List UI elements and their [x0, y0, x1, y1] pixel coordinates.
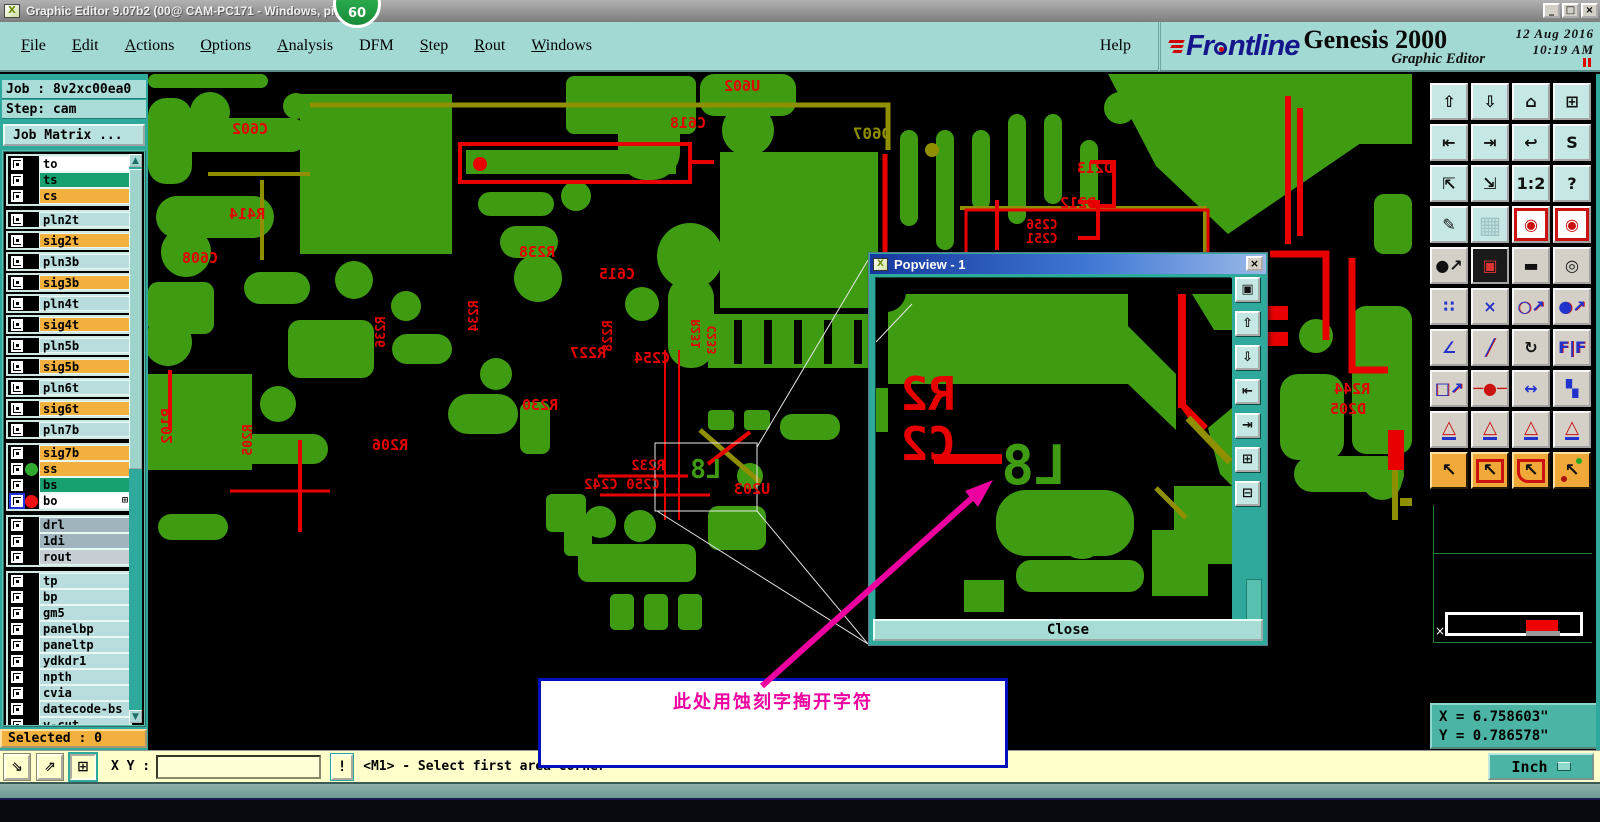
- layer-row-sig3b: sig3b: [6, 273, 132, 292]
- layer-checkbox-cvia[interactable]: [11, 687, 23, 699]
- scroll-up-icon[interactable]: ▲: [129, 154, 142, 167]
- layer-scrollbar[interactable]: ▲ ▼: [129, 154, 142, 723]
- layer-name-pln5b[interactable]: pln5b: [39, 338, 130, 353]
- layer-name-v-cut[interactable]: v-cut: [39, 717, 130, 727]
- layer-checkbox-bs[interactable]: [11, 479, 23, 491]
- maximize-button[interactable]: □: [1562, 3, 1579, 18]
- navigator-line: [1433, 505, 1434, 642]
- grid-select-button[interactable]: ⊞: [70, 754, 96, 780]
- home-view-button[interactable]: ⌂: [1512, 83, 1550, 120]
- product-subtitle: Graphic Editor: [1391, 51, 1485, 68]
- layer-name-pln6t[interactable]: pln6t: [39, 380, 130, 395]
- zoom-out-view-button[interactable]: ⇩: [1471, 83, 1509, 120]
- layer-name-sig4t[interactable]: sig4t: [39, 317, 130, 332]
- measure-ruler-button[interactable]: ▬: [1512, 247, 1550, 284]
- layer-row-rout: rout: [8, 549, 130, 565]
- popview-pan-left-button[interactable]: ⇤: [1235, 379, 1260, 404]
- layer-name-gm5[interactable]: gm5: [39, 605, 130, 621]
- navigator-marker: [1526, 620, 1558, 631]
- layer-row-bo: bo⊞: [8, 493, 130, 509]
- axis-select-button[interactable]: ⇗: [37, 754, 63, 780]
- layer-checkbox-pln7b[interactable]: [11, 424, 23, 436]
- app-icon: X: [4, 4, 20, 18]
- popview-title: Popview - 1: [894, 257, 966, 272]
- surface-fill-1-button[interactable]: △: [1430, 411, 1468, 448]
- status-buttons: ⇘⇗⊞: [4, 754, 103, 780]
- right-panel: ⇧⇩⌂⊞⇤⇥↩S⇱⇲1:2?✎▦◉◉●↗▣▬◎∷×○↗●↗∠╱↻F|F□↗─●─…: [1412, 74, 1596, 750]
- popview-window[interactable]: X Popview - 1 ×: [868, 252, 1268, 646]
- layer-row-bp: bp: [8, 589, 130, 605]
- popview-close-icon[interactable]: ×: [1246, 256, 1263, 271]
- layer-checkbox-sig6t[interactable]: [11, 403, 23, 415]
- previous-view-button[interactable]: ↩: [1512, 124, 1550, 161]
- serpentine-view-button[interactable]: S: [1553, 124, 1591, 161]
- layer-row-ss: ss: [8, 461, 130, 477]
- pcb-label: C2: [900, 417, 955, 471]
- move-origin-button[interactable]: ●↗: [1430, 247, 1468, 284]
- layer-colors-a-button[interactable]: ◉: [1512, 206, 1550, 243]
- window-title: Graphic Editor 9.07b2 (00@ CAM-PC171 - W…: [26, 4, 376, 18]
- select-net-button[interactable]: ↖: [1553, 452, 1591, 489]
- split-view-xy-button[interactable]: ⊞: [1553, 83, 1591, 120]
- surface-fill-4-button[interactable]: △: [1553, 411, 1591, 448]
- layer-list: totscspln2tsig2tpln3bsig3bpln4tsig4tpln5…: [2, 150, 146, 727]
- layer-row-panelbp: panelbp: [8, 621, 130, 637]
- scroll-thumb[interactable]: [129, 169, 142, 469]
- copy-pad-button[interactable]: □↗: [1430, 370, 1468, 407]
- layer-checkbox-pln4t[interactable]: [11, 298, 23, 310]
- layer-row-drl: drl: [8, 517, 130, 533]
- pcb-label: C233: [705, 326, 719, 355]
- pcb-label: R227: [570, 344, 606, 362]
- brand-panel: Frntline Genesis 2000 Graphic Editor 12 …: [1158, 22, 1600, 72]
- pause-icon: [1583, 58, 1591, 67]
- stretch-trace-button[interactable]: ─●─: [1471, 370, 1509, 407]
- coord-x: X = 6.758603": [1439, 708, 1596, 727]
- layer-name-pln7b[interactable]: pln7b: [39, 422, 130, 437]
- popview-copy-button[interactable]: ▣: [1235, 277, 1260, 302]
- layer-row-cs: cs: [8, 188, 130, 204]
- pcb-label: L8: [1001, 434, 1066, 497]
- pcb-label: R230: [522, 396, 558, 414]
- logo-o-icon: [1214, 42, 1227, 55]
- measure-angle-button[interactable]: ∠: [1430, 329, 1468, 366]
- window-right-border: [1596, 74, 1600, 782]
- layer-checkbox-sig7b[interactable]: [11, 447, 23, 459]
- layer-row-pln7b: pln7b: [6, 420, 132, 439]
- layer-color-dot: [25, 463, 38, 476]
- layer-name-pln2t[interactable]: pln2t: [39, 212, 130, 227]
- close-button[interactable]: ×: [1581, 3, 1598, 18]
- measure-width-button[interactable]: ↔: [1512, 370, 1550, 407]
- layer-name-bo[interactable]: bo⊞: [39, 493, 130, 509]
- sidebar: Job : 8v2xc00ea0 Step: cam Job Matrix ..…: [0, 74, 148, 750]
- xy-label: X Y :: [111, 759, 150, 774]
- annotation-box: 此处用蚀刻字掏开字符: [538, 678, 1008, 768]
- layer-row-pln2t: pln2t: [6, 210, 132, 229]
- layer-checkbox-sig3b[interactable]: [11, 277, 23, 289]
- navigator-origin-marker: ×: [1435, 624, 1445, 638]
- layer-checkbox-1di[interactable]: [11, 535, 23, 547]
- menu-rout[interactable]: Rout: [461, 31, 518, 61]
- job-field: Job : 8v2xc00ea0: [2, 80, 146, 99]
- layer-color-dot: [25, 495, 38, 508]
- boolean-shapes-button[interactable]: ▚: [1553, 370, 1591, 407]
- layer-row-pln4t: pln4t: [6, 294, 132, 313]
- layer-checkbox-sig5b[interactable]: [11, 361, 23, 373]
- scroll-down-icon[interactable]: ▼: [129, 710, 142, 723]
- layer-checkbox-panelbp[interactable]: [11, 623, 23, 635]
- layer-checkbox-npth[interactable]: [11, 671, 23, 683]
- pcb-label: R2: [900, 367, 955, 421]
- select-reference-button[interactable]: ◎: [1553, 247, 1591, 284]
- zoom-in-view-button[interactable]: ⇧: [1430, 83, 1468, 120]
- layer-name-paneltp[interactable]: paneltp: [39, 637, 130, 653]
- layer-row-ts: ts: [8, 172, 130, 188]
- layer-name-ss[interactable]: ss: [39, 461, 130, 477]
- menu-help[interactable]: Help: [1087, 31, 1144, 61]
- rotate-entity-button[interactable]: ↻: [1512, 329, 1550, 366]
- layer-name-panelbp[interactable]: panelbp: [39, 621, 130, 637]
- units-dropdown[interactable]: Inch: [1488, 753, 1594, 780]
- layer-checkbox-cs[interactable]: [11, 190, 23, 202]
- menu-actions[interactable]: Actions: [112, 31, 188, 61]
- layer-row-gm5: gm5: [8, 605, 130, 621]
- layer-row-pln6t: pln6t: [6, 378, 132, 397]
- pcb-label: C618: [670, 114, 706, 132]
- layer-name-sig7b[interactable]: sig7b: [39, 445, 130, 461]
- pcb-label: P102: [158, 408, 176, 444]
- annotation-text: 此处用蚀刻字掏开字符: [541, 688, 1005, 714]
- popview-canvas[interactable]: R2C2L8: [875, 277, 1231, 619]
- layer-name-ts[interactable]: ts: [39, 172, 130, 188]
- date-text: 12 Aug 2016: [1504, 26, 1594, 42]
- pcb-label: R232: [631, 458, 665, 474]
- xy-input[interactable]: [156, 755, 321, 779]
- layer-checkbox-v-cut[interactable]: [11, 719, 23, 727]
- pcb-label: D607: [853, 124, 892, 143]
- layer-row-datecode-bs: datecode-bs: [8, 701, 130, 717]
- menu-step[interactable]: Step: [407, 31, 461, 61]
- pcb-label: R236: [374, 316, 389, 347]
- layer-checkbox-pln2t[interactable]: [11, 214, 23, 226]
- minimize-button[interactable]: _: [1543, 3, 1560, 18]
- coord-y: Y = 0.786578": [1439, 727, 1596, 746]
- layer-checkbox-sig2t[interactable]: [11, 235, 23, 247]
- select-rectangle-button[interactable]: ↖: [1471, 452, 1509, 489]
- layer-checkbox-pln6t[interactable]: [11, 382, 23, 394]
- frontline-logo: Frntline: [1161, 22, 1299, 70]
- selected-count: Selected : 0: [0, 729, 147, 748]
- shrink-view-button[interactable]: ⇲: [1471, 165, 1509, 202]
- layer-name-sig3b[interactable]: sig3b: [39, 275, 130, 290]
- pcb-label: C251: [1026, 232, 1057, 247]
- pcb-label: R234: [467, 300, 482, 331]
- popview-icon: X: [873, 258, 888, 271]
- navigator-marker-shadow: [1526, 631, 1560, 636]
- pcb-label: C615: [599, 265, 635, 283]
- layer-checkbox-bp[interactable]: [11, 591, 23, 603]
- time-text: 10:19 AM: [1504, 42, 1594, 58]
- net-highlight-button[interactable]: ∷: [1430, 288, 1468, 325]
- layer-row-sig4t: sig4t: [6, 315, 132, 334]
- layer-name-sig5b[interactable]: sig5b: [39, 359, 130, 374]
- menu-dfm[interactable]: DFM: [346, 31, 407, 61]
- layer-row-bs: bs: [8, 477, 130, 493]
- layer-name-bp[interactable]: bp: [39, 589, 130, 605]
- navigator-view-rect[interactable]: [1445, 612, 1583, 636]
- dropdown-indicator-icon: [1557, 762, 1571, 771]
- pcb-label: R414: [229, 205, 265, 223]
- navigator-line: [1433, 642, 1592, 643]
- layer-checkbox-paneltp[interactable]: [11, 639, 23, 651]
- pcb-label: C256: [1026, 218, 1057, 233]
- measure-point-button[interactable]: ○↗: [1512, 288, 1550, 325]
- units-label: Inch: [1511, 758, 1547, 776]
- layer-row-pln3b: pln3b: [6, 252, 132, 271]
- layer-row-sig5b: sig5b: [6, 357, 132, 376]
- layer-name-bs[interactable]: bs: [39, 477, 130, 493]
- layer-row-to: to: [8, 156, 130, 172]
- layer-checkbox-to[interactable]: [11, 158, 23, 170]
- popview-zoom-in-button[interactable]: ⇧: [1235, 311, 1260, 336]
- pcb-label: R205: [241, 424, 256, 455]
- layer-colors-b-button[interactable]: ◉: [1553, 206, 1591, 243]
- layer-checkbox-tp[interactable]: [11, 575, 23, 587]
- editor-tools-button[interactable]: ✎: [1430, 206, 1468, 243]
- layer-checkbox-gm5[interactable]: [11, 607, 23, 619]
- window-bottom-border: [0, 782, 1600, 798]
- zoom-half-button[interactable]: 1:2: [1512, 165, 1550, 202]
- layer-checkbox-rout[interactable]: [11, 551, 23, 563]
- layer-row-ydkdr1: ydkdr1: [8, 653, 130, 669]
- layer-name-drl[interactable]: drl: [39, 517, 130, 533]
- layer-name-to[interactable]: to: [39, 156, 130, 172]
- menu-items: FileEditActionsOptionsAnalysisDFMStepRou…: [8, 31, 605, 61]
- pcb-label: C608: [182, 249, 218, 267]
- layer-name-cs[interactable]: cs: [39, 188, 130, 204]
- expand-view-button[interactable]: ⇱: [1430, 165, 1468, 202]
- pcb-label: C250 C242: [584, 477, 660, 493]
- pcb-label: D205: [1330, 400, 1366, 418]
- layer-name-pln3b[interactable]: pln3b: [39, 254, 130, 269]
- pan-left-button[interactable]: ⇤: [1430, 124, 1468, 161]
- layer-checkbox-drl[interactable]: [11, 519, 23, 531]
- measure-slope-button[interactable]: ╱: [1471, 329, 1509, 366]
- layer-row-cvia: cvia: [8, 685, 130, 701]
- menu-edit[interactable]: Edit: [59, 31, 112, 61]
- corner-select-button[interactable]: ⇘: [4, 754, 30, 780]
- title-bar: X Graphic Editor 9.07b2 (00@ CAM-PC171 -…: [0, 0, 1600, 22]
- layer-row-v-cut: v-cut: [8, 717, 130, 727]
- surface-fill-3-button[interactable]: △: [1512, 411, 1550, 448]
- layer-name-pln4t[interactable]: pln4t: [39, 296, 130, 311]
- layer-name-datecode-bs[interactable]: datecode-bs: [39, 701, 130, 717]
- select-pointer-button[interactable]: ↖: [1430, 452, 1468, 489]
- layer-checkbox-ydkdr1[interactable]: [11, 655, 23, 667]
- layer-checkbox-sig4t[interactable]: [11, 319, 23, 331]
- pcb-label: R206: [372, 436, 408, 454]
- popview-fit-button[interactable]: ⊞: [1235, 447, 1260, 472]
- step-field: Step: cam: [2, 100, 146, 119]
- layer-name-sig6t[interactable]: sig6t: [39, 401, 130, 416]
- layer-row-1di: 1di: [8, 533, 130, 549]
- pcb-label: L8: [690, 455, 721, 485]
- desktop-strip: [0, 798, 1600, 822]
- delete-entity-button[interactable]: ×: [1471, 288, 1509, 325]
- layer-row-pln5b: pln5b: [6, 336, 132, 355]
- layer-row-tp: tp: [8, 573, 130, 589]
- navigator-line: [1433, 553, 1592, 554]
- layer-name-rout[interactable]: rout: [39, 549, 130, 565]
- menu-bar: FileEditActionsOptionsAnalysisDFMStepRou…: [0, 22, 1158, 72]
- popview-center-button[interactable]: ⊟: [1235, 481, 1260, 506]
- layer-name-ydkdr1[interactable]: ydkdr1: [39, 653, 130, 669]
- layer-checkbox-ss[interactable]: [11, 463, 23, 475]
- coordinate-readout: X = 6.758603" Y = 0.786578": [1430, 703, 1598, 749]
- mirror-entity-button[interactable]: F|F: [1553, 329, 1591, 366]
- measure-pad-button[interactable]: ●↗: [1553, 288, 1591, 325]
- menu-file[interactable]: File: [8, 31, 59, 61]
- layer-name-cvia[interactable]: cvia: [39, 685, 130, 701]
- job-matrix-button[interactable]: Job Matrix ...: [3, 124, 145, 146]
- layer-row-sig6t: sig6t: [6, 399, 132, 418]
- pcb-label: U602: [724, 77, 760, 95]
- layer-checkbox-pln5b[interactable]: [11, 340, 23, 352]
- pcb-label: R244: [1334, 380, 1370, 398]
- layer-name-npth[interactable]: npth: [39, 669, 130, 685]
- pcb-label: R238: [519, 243, 555, 261]
- layer-checkbox-ts[interactable]: [11, 174, 23, 186]
- select-polygon-button[interactable]: ↖: [1512, 452, 1550, 489]
- layer-name-1di[interactable]: 1di: [39, 533, 130, 549]
- popview-toolbar: ▣⇧⇩⇤⇥⊞⊟: [1233, 277, 1264, 619]
- layer-row-npth: npth: [8, 669, 130, 685]
- layer-checkbox-datecode-bs[interactable]: [11, 703, 23, 715]
- pcb-label: R231: [689, 320, 703, 349]
- layer-row-sig7b: sig7b: [8, 445, 130, 461]
- popview-close-button[interactable]: Close: [873, 619, 1263, 641]
- pcb-label: U203: [734, 480, 770, 498]
- pcb-label: C254: [634, 349, 670, 367]
- popview-zoom-out-button[interactable]: ⇩: [1235, 345, 1260, 370]
- layer-row-paneltp: paneltp: [8, 637, 130, 653]
- surface-fill-2-button[interactable]: △: [1471, 411, 1509, 448]
- pan-right-button[interactable]: ⇥: [1471, 124, 1509, 161]
- menu-options[interactable]: Options: [187, 31, 264, 61]
- layer-name-tp[interactable]: tp: [39, 573, 130, 589]
- alert-button[interactable]: !: [331, 754, 353, 780]
- layer-checkbox-pln3b[interactable]: [11, 256, 23, 268]
- layer-grid-icon: ⊞: [122, 494, 128, 508]
- popview-titlebar[interactable]: X Popview - 1 ×: [870, 254, 1266, 274]
- right-toolbar: ⇧⇩⌂⊞⇤⇥↩S⇱⇲1:2?✎▦◉◉●↗▣▬◎∷×○↗●↗∠╱↻F|F□↗─●─…: [1430, 83, 1591, 489]
- popview-pan-right-button[interactable]: ⇥: [1235, 413, 1260, 438]
- menu-windows[interactable]: Windows: [518, 31, 605, 61]
- grid-toggle-button[interactable]: ▦: [1471, 206, 1509, 243]
- layer-checkbox-bo[interactable]: [11, 495, 23, 507]
- menu-analysis[interactable]: Analysis: [264, 31, 346, 61]
- pcb-label: C602: [232, 120, 268, 138]
- help-pointer-button[interactable]: ?: [1553, 165, 1591, 202]
- pcb-label: D213: [1077, 159, 1113, 177]
- compare-layers-button[interactable]: ▣: [1471, 247, 1509, 284]
- layer-row-sig2t: sig2t: [6, 231, 132, 250]
- speedlines-icon: [1169, 40, 1184, 53]
- pcb-label: D212: [1060, 194, 1096, 212]
- layer-name-sig2t[interactable]: sig2t: [39, 233, 130, 248]
